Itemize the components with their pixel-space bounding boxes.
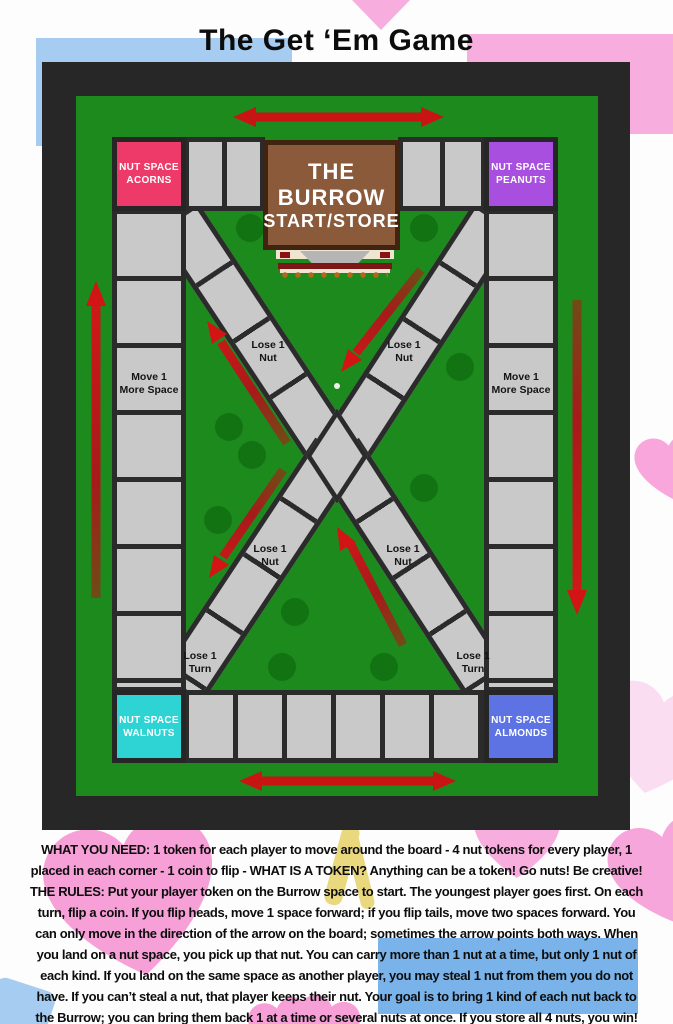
corner-label: ALMONDS [495,727,548,740]
bush-icon [268,653,296,681]
burrow-entrance-icon [380,252,390,258]
burrow-entrance-icon [282,271,388,278]
bush-icon [238,441,266,469]
corner-label: NUT SPACE [491,161,551,174]
burrow-entrance-icon [280,252,290,258]
rules-line: you land on a nut space, you pick up tha… [0,944,673,965]
corner-label: NUT SPACE [491,714,551,727]
corner-label: ACORNS [126,174,171,187]
corner-space-almonds: NUT SPACE ALMONDS [484,690,558,763]
corner-label: PEANUTS [496,174,546,187]
rules-line: have. If you can’t steal a nut, that pla… [0,986,673,1007]
bush-icon [281,598,309,626]
corner-space-walnuts: NUT SPACE WALNUTS [112,690,186,763]
rules-line: THE RULES: Put your player token on the … [0,881,673,902]
rules-line: turn, flip a coin. If you flip heads, mo… [0,902,673,923]
lose-1-turn-label: Lose 1 Turn [154,650,246,676]
rules-line: WHAT YOU NEED: 1 token for each player t… [0,839,673,860]
rules-line: each kind. If you land on the same space… [0,965,673,986]
lose-1-nut-label: Lose 1 Nut [222,339,314,365]
corner-space-peanuts: NUT SPACE PEANUTS [484,137,558,211]
rules-line: the Burrow; you can bring them back 1 at… [0,1007,673,1024]
page-title: The Get ‘Em Game [0,24,673,58]
top-track-right [398,137,486,211]
move-1-more-space-label: Move 1 More Space [475,371,567,397]
corner-label: NUT SPACE [119,161,179,174]
lose-1-nut-label: Lose 1 Nut [358,339,450,365]
lose-1-nut-label: Lose 1 Nut [357,543,449,569]
rules-line: placed in each corner - 1 coin to flip -… [0,860,673,881]
move-1-more-space-label: Move 1 More Space [103,371,195,397]
top-track-left [184,137,265,211]
lose-1-nut-label: Lose 1 Nut [224,543,316,569]
right-track [484,209,558,692]
game-sheet: The Get ‘Em Game NUT SPACE ACORNS NUT SP… [0,0,673,1024]
bush-icon [204,506,232,534]
burrow-label: THE BURROW [268,159,395,211]
burrow-label: START/STORE [263,211,399,232]
corner-label: WALNUTS [123,727,175,740]
left-track [112,209,186,692]
rules-text: WHAT YOU NEED: 1 token for each player t… [0,839,673,1024]
heart-icon [632,431,673,505]
burrow-start-space: THE BURROW START/STORE [263,140,400,250]
bottom-track [184,690,486,763]
bush-icon [370,653,398,681]
corner-label: NUT SPACE [119,714,179,727]
lose-1-turn-label: Lose 1 Turn [427,650,519,676]
bush-icon [410,474,438,502]
white-dot [334,383,340,389]
bush-icon [215,413,243,441]
bush-icon [410,214,438,242]
bush-icon [446,353,474,381]
rules-line: can only move in the direction of the ar… [0,923,673,944]
bush-icon [236,214,264,242]
corner-space-acorns: NUT SPACE ACORNS [112,137,186,211]
